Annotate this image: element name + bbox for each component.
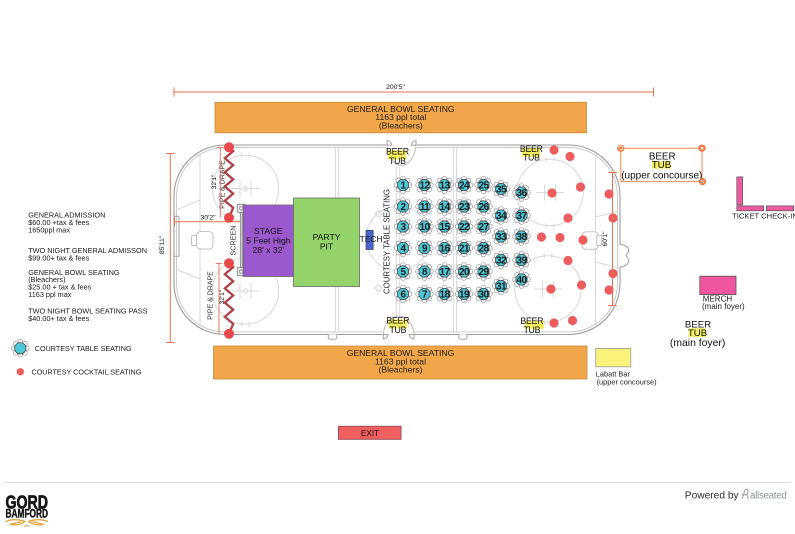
svg-text:28' x 32': 28' x 32' xyxy=(253,245,285,255)
svg-text:28: 28 xyxy=(478,244,489,255)
svg-text:(upper concourse): (upper concourse) xyxy=(597,378,657,387)
svg-text:32: 32 xyxy=(496,256,507,267)
svg-text:19: 19 xyxy=(459,290,470,301)
svg-text:18: 18 xyxy=(439,290,450,301)
svg-text:29: 29 xyxy=(478,267,489,278)
svg-text:COURTESY COCKTAIL SEATING: COURTESY COCKTAIL SEATING xyxy=(32,367,142,376)
svg-text:200'5": 200'5" xyxy=(386,84,405,91)
svg-text:(upper concourse): (upper concourse) xyxy=(621,171,702,182)
svg-text:TECH: TECH xyxy=(360,234,383,244)
svg-text:23: 23 xyxy=(459,202,470,213)
svg-text:35: 35 xyxy=(496,185,507,196)
svg-text:36: 36 xyxy=(516,188,527,199)
svg-text:(Bleachers): (Bleachers) xyxy=(379,121,423,131)
svg-text:16: 16 xyxy=(439,244,450,255)
svg-text:PIT: PIT xyxy=(320,242,334,252)
svg-text:30'2": 30'2" xyxy=(200,215,216,222)
svg-text:$99.00+ tax & fees: $99.00+ tax & fees xyxy=(28,254,89,263)
svg-text:1650ppl max: 1650ppl max xyxy=(28,225,70,234)
svg-text:1163 ppl max: 1163 ppl max xyxy=(28,290,72,299)
svg-text:39: 39 xyxy=(516,256,527,267)
svg-text:26: 26 xyxy=(478,202,489,213)
svg-text:14: 14 xyxy=(439,202,450,213)
svg-text:32'1": 32'1" xyxy=(219,289,226,304)
svg-text:40: 40 xyxy=(516,275,527,286)
svg-text:PIPE & DRAPE: PIPE & DRAPE xyxy=(208,271,215,320)
svg-text:60'1": 60'1" xyxy=(602,231,609,247)
svg-text:TUB: TUB xyxy=(523,153,540,163)
svg-text:TUB: TUB xyxy=(523,325,540,335)
svg-text:TICKET CHECK-IN: TICKET CHECK-IN xyxy=(732,212,795,221)
svg-text:TUB: TUB xyxy=(389,325,406,335)
svg-text:TUB: TUB xyxy=(389,156,406,166)
svg-text:STAGE: STAGE xyxy=(254,226,283,236)
svg-text:85'11": 85'11" xyxy=(159,235,166,254)
svg-text:10: 10 xyxy=(419,222,430,233)
svg-text:34: 34 xyxy=(496,211,507,222)
svg-text:25: 25 xyxy=(478,181,489,192)
svg-text:20: 20 xyxy=(459,267,470,278)
svg-text:12: 12 xyxy=(419,181,430,192)
svg-text:COURTESY TABLE SEATING: COURTESY TABLE SEATING xyxy=(35,344,132,353)
svg-text:37: 37 xyxy=(516,211,527,222)
svg-text:$40.00+ tax & fees: $40.00+ tax & fees xyxy=(28,314,89,323)
svg-text:5 Feet High: 5 Feet High xyxy=(246,236,291,246)
svg-text:(Bleachers): (Bleachers) xyxy=(379,365,423,375)
svg-text:(main foyer): (main foyer) xyxy=(670,338,725,349)
svg-text:allseated: allseated xyxy=(750,491,787,502)
svg-text:22: 22 xyxy=(459,222,470,233)
svg-text:SCREEN: SCREEN xyxy=(229,226,238,256)
svg-text:27: 27 xyxy=(478,222,489,233)
svg-text:13: 13 xyxy=(439,181,450,192)
svg-text:30: 30 xyxy=(478,290,489,301)
svg-text:(main foyer): (main foyer) xyxy=(702,302,745,311)
svg-text:15: 15 xyxy=(439,222,450,233)
svg-text:PARTY: PARTY xyxy=(313,232,341,242)
svg-text:33: 33 xyxy=(496,232,507,243)
svg-text:21: 21 xyxy=(459,244,470,255)
svg-text:TUB: TUB xyxy=(652,160,672,171)
svg-text:31: 31 xyxy=(496,282,507,293)
svg-text:32'1": 32'1" xyxy=(211,174,218,189)
svg-text:38: 38 xyxy=(516,232,527,243)
svg-text:17: 17 xyxy=(439,267,450,278)
svg-text:BEER: BEER xyxy=(386,146,409,156)
svg-text:24: 24 xyxy=(459,181,470,192)
svg-text:COURTESY TABLE SEATING: COURTESY TABLE SEATING xyxy=(382,189,391,294)
svg-text:EXIT: EXIT xyxy=(361,429,379,438)
svg-text:BAMFORD: BAMFORD xyxy=(6,508,49,521)
svg-text:Powered by: Powered by xyxy=(685,491,740,502)
svg-text:11: 11 xyxy=(420,202,431,213)
